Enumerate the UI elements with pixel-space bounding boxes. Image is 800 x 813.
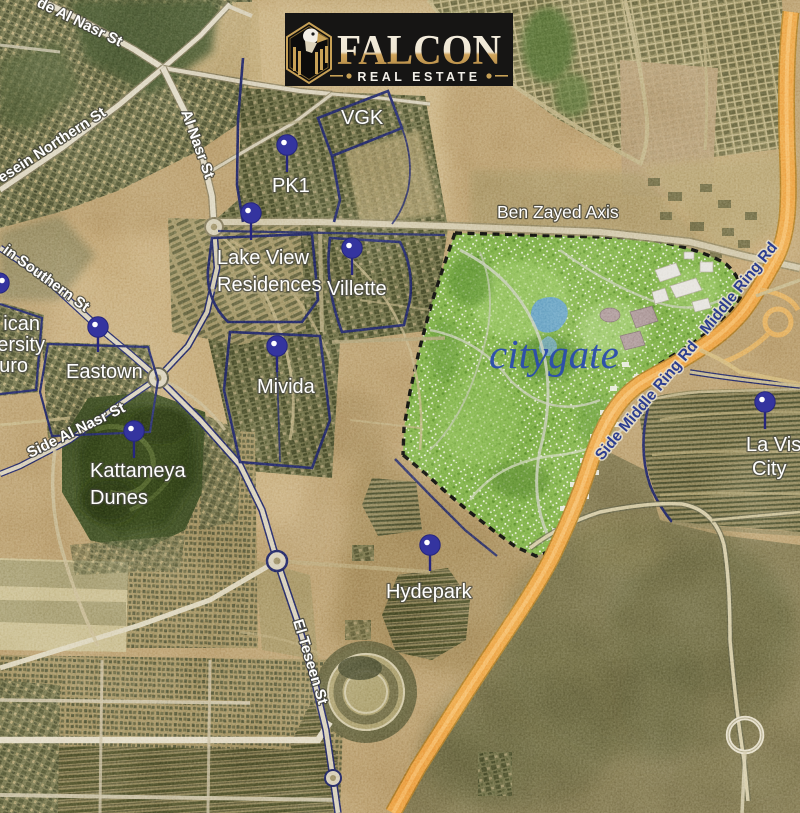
svg-text:ican: ican — [3, 313, 40, 335]
svg-text:Residences: Residences — [217, 274, 322, 296]
svg-text:Hydepark: Hydepark — [386, 581, 473, 603]
svg-text:versity: versity — [0, 334, 45, 356]
svg-text:Dunes: Dunes — [90, 487, 148, 509]
svg-text:uro: uro — [0, 355, 28, 377]
svg-text:Mivida: Mivida — [257, 376, 316, 398]
svg-text:FALCON: FALCON — [337, 28, 501, 74]
svg-text:PK1: PK1 — [272, 175, 310, 197]
svg-text:Kattameya: Kattameya — [90, 460, 186, 482]
svg-text:City: City — [752, 458, 786, 480]
svg-text:Villette: Villette — [327, 278, 387, 300]
svg-text:citygate: citygate — [489, 331, 619, 377]
svg-text:Lake View: Lake View — [217, 247, 309, 269]
svg-text:Eastown: Eastown — [66, 361, 143, 383]
svg-text:REAL ESTATE: REAL ESTATE — [357, 70, 480, 84]
svg-text:VGK: VGK — [341, 107, 384, 129]
svg-text:Ben Zayed Axis: Ben Zayed Axis — [497, 202, 619, 222]
svg-text:La Vista: La Vista — [746, 434, 800, 456]
